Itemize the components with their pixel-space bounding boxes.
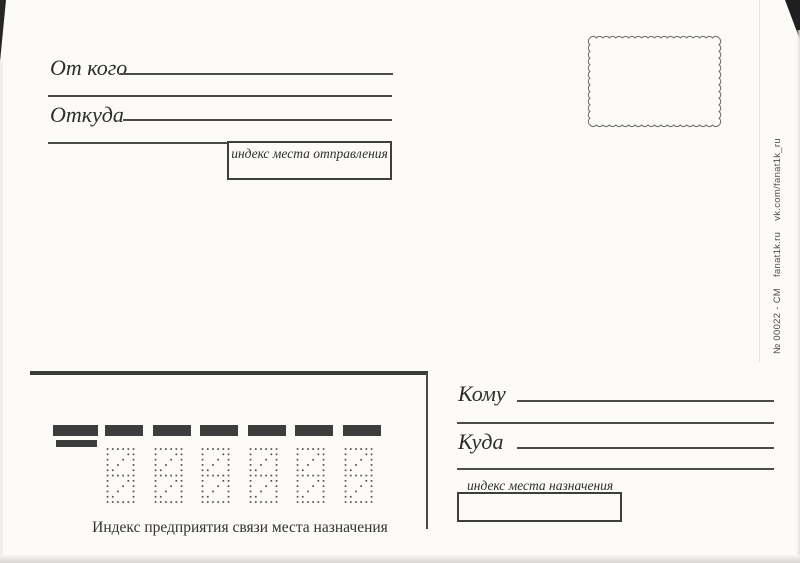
scan-shadow-left — [0, 60, 3, 555]
index-marker-bar — [295, 425, 333, 436]
sender-extra-line — [48, 95, 392, 97]
index-zone-top-border — [30, 371, 428, 375]
index-zone-right-border — [426, 373, 428, 529]
catalog-number: № 00022 - СМ — [772, 288, 783, 354]
index-marker-bars — [53, 425, 383, 448]
stamp-scalloped-border-icon — [587, 35, 722, 128]
destination-index-box — [457, 492, 622, 522]
social-url: vk.com/fanat1k_ru — [772, 138, 783, 221]
from-whom-line — [120, 73, 393, 75]
recipient-extra-line — [457, 422, 774, 424]
to-where-line — [517, 447, 774, 449]
index-marker-bar — [343, 425, 381, 436]
origin-index-label: индекс места отправления — [229, 143, 390, 162]
origin-index-box: индекс места отправления — [227, 141, 392, 180]
to-whom-line — [517, 400, 774, 402]
index-stencil-row — [105, 447, 377, 505]
index-submarker-bar — [56, 440, 97, 447]
edge-info: № 00022 - СМ fanat1k.ru vk.com/fanat1k_r… — [770, 132, 784, 354]
scan-shadow-right — [796, 30, 800, 555]
to-whom-label: Кому — [458, 383, 506, 405]
recipient-extra-line-2 — [457, 468, 774, 470]
postal-index-stencil — [343, 447, 374, 504]
index-marker-bar — [53, 425, 98, 436]
postal-index-stencil — [153, 447, 184, 504]
scan-shadow-bottom — [0, 555, 800, 563]
postal-index-stencil — [200, 447, 231, 504]
to-where-label: Куда — [458, 431, 504, 453]
from-whom-label: От кого — [50, 57, 127, 79]
postal-index-stencil — [248, 447, 279, 504]
postal-index-stencil — [105, 447, 136, 504]
sender-extra-line-2 — [48, 142, 228, 144]
index-marker-bar — [105, 425, 143, 436]
index-marker-bar — [153, 425, 191, 436]
from-where-line — [123, 119, 392, 121]
index-caption: Индекс предприятия связи места назначени… — [45, 519, 435, 537]
postal-index-stencil — [295, 447, 326, 504]
scan-edge-top-left — [0, 0, 8, 62]
postcard-back: От кого Откуда индекс места отправления … — [0, 0, 800, 563]
edge-divider-line — [759, 0, 760, 362]
stamp-box — [587, 35, 722, 128]
index-marker-bar — [248, 425, 286, 436]
index-marker-bar — [200, 425, 238, 436]
destination-index-label: индекс места назначения — [467, 479, 613, 493]
from-where-label: Откуда — [50, 104, 124, 126]
site-url: fanat1k.ru — [772, 232, 783, 277]
